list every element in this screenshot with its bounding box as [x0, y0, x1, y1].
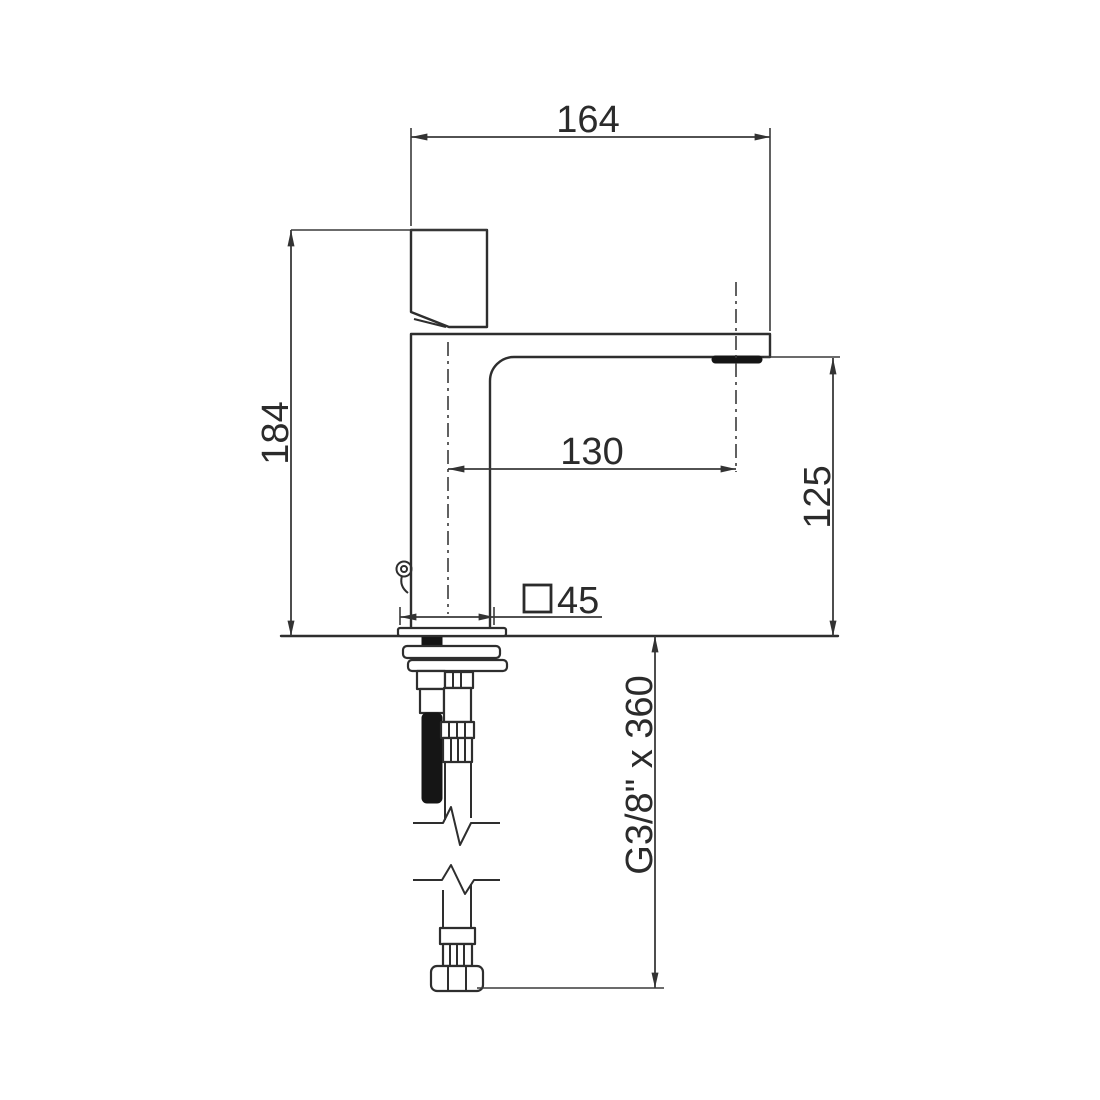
dim-label-total-width: 164	[556, 99, 619, 141]
dim-label-spout-reach: 130	[560, 431, 623, 473]
threaded-stud	[422, 713, 442, 803]
stud-nut-lower	[420, 689, 444, 713]
hose-connector-body	[444, 688, 471, 722]
dimension-base-width: 45	[400, 580, 602, 625]
dimension-spout-height: 125	[764, 357, 840, 636]
popup-rod-ring-hole	[401, 566, 407, 572]
hose-connector-collar	[445, 672, 473, 688]
base-flange	[398, 628, 506, 636]
stud-nut-upper	[417, 671, 445, 689]
dim-label-supply-hose: G3/8" x 360	[619, 675, 661, 874]
dimension-total-height: 184	[255, 230, 487, 636]
dimension-supply-hose: G3/8" x 360	[477, 636, 664, 988]
square-section-symbol	[524, 585, 551, 612]
technical-drawing-canvas: 164 184 130 125 45 G3/8" x 360	[0, 0, 1100, 1100]
dim-label-total-height: 184	[255, 401, 297, 464]
hose-end-nut	[431, 966, 483, 991]
dimension-total-width: 164	[411, 99, 770, 331]
dim-label-base-width: 45	[557, 580, 599, 622]
washer-plate-2	[408, 660, 507, 671]
faucet-handle	[411, 230, 487, 327]
popup-rod-tail	[401, 576, 408, 593]
aerator	[712, 356, 762, 363]
hose-break-lower	[413, 865, 500, 894]
faucet-dimension-diagram: 164 184 130 125 45 G3/8" x 360	[0, 0, 1100, 1100]
popup-rod-ring	[397, 562, 412, 577]
faucet-outline	[397, 230, 771, 628]
hose-end-collar	[440, 928, 475, 944]
dim-label-spout-height: 125	[797, 465, 839, 528]
hose-break-upper	[413, 807, 500, 845]
washer-plate-1	[403, 646, 500, 658]
